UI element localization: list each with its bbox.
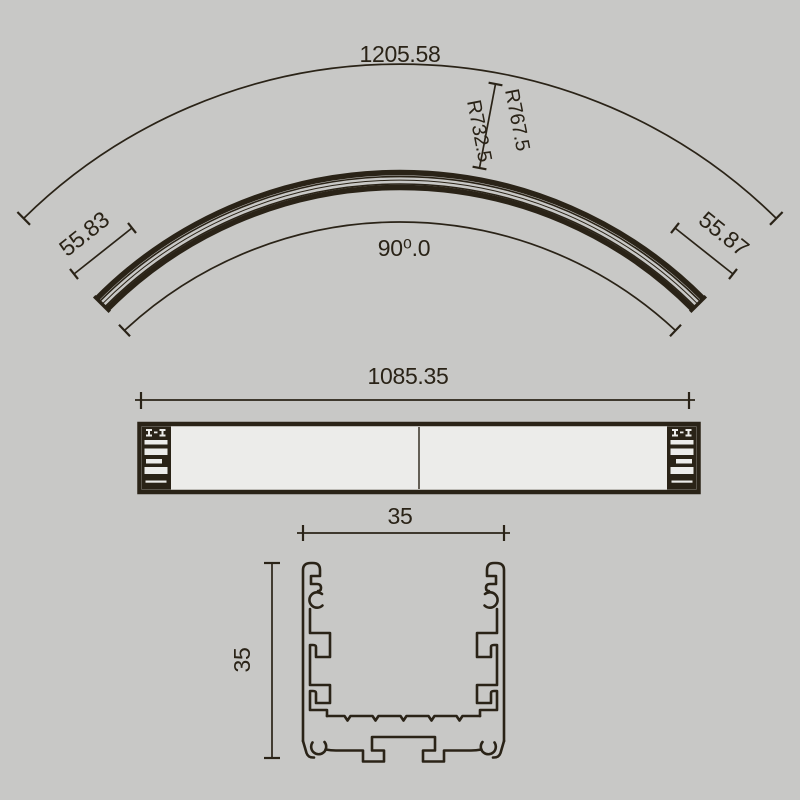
dim-label-length: 1085.35 bbox=[367, 363, 448, 389]
dimension-radius: R767.5 R732.5 bbox=[462, 83, 534, 170]
right-screw-keyhole bbox=[481, 742, 496, 754]
left-wall-outline bbox=[303, 563, 321, 741]
left-clip-circle bbox=[309, 592, 322, 607]
left-wall-hooks bbox=[310, 609, 330, 716]
dim-label-angle: 90⁰.0 bbox=[378, 235, 431, 261]
dim-label-right-end: 55.87 bbox=[694, 206, 754, 261]
dim-label-radius-outer: R767.5 bbox=[500, 87, 534, 153]
dim-label-outer-arc-length: 1205.58 bbox=[359, 41, 440, 67]
dim-label-section-width: 35 bbox=[388, 503, 413, 529]
dimension-section-width: 35 bbox=[297, 503, 510, 541]
dimension-length: 1085.35 bbox=[135, 363, 695, 409]
left-screw-keyhole bbox=[311, 742, 326, 754]
side-view-right-endcap bbox=[667, 427, 696, 490]
serrated-floor bbox=[327, 716, 480, 721]
dimension-section-height: 35 bbox=[229, 563, 280, 758]
right-wall-hooks bbox=[477, 609, 497, 716]
cross-section-profile bbox=[303, 563, 504, 762]
bottom-face-and-t-slot bbox=[326, 737, 482, 762]
dimension-right-end: 55.87 bbox=[671, 206, 754, 279]
side-view: 1085.35 bbox=[135, 363, 699, 492]
right-wall-outline bbox=[486, 563, 504, 741]
curved-profile-view: 1205.58 R767.5 R732.5 90⁰.0 55.83 bbox=[17, 41, 782, 336]
side-view-left-endcap bbox=[142, 427, 171, 490]
dim-label-left-end: 55.83 bbox=[54, 206, 114, 261]
dim-label-section-height: 35 bbox=[229, 648, 255, 673]
profile-dimension-drawing: 1205.58 R767.5 R732.5 90⁰.0 55.83 bbox=[0, 0, 800, 800]
right-clip-circle bbox=[485, 592, 498, 607]
dimension-outer-arc: 1205.58 bbox=[17, 41, 782, 225]
dimension-left-end: 55.83 bbox=[54, 206, 136, 279]
technical-drawing-canvas: 1205.58 R767.5 R732.5 90⁰.0 55.83 bbox=[0, 0, 800, 800]
cross-section-view: 35 35 bbox=[229, 503, 510, 762]
